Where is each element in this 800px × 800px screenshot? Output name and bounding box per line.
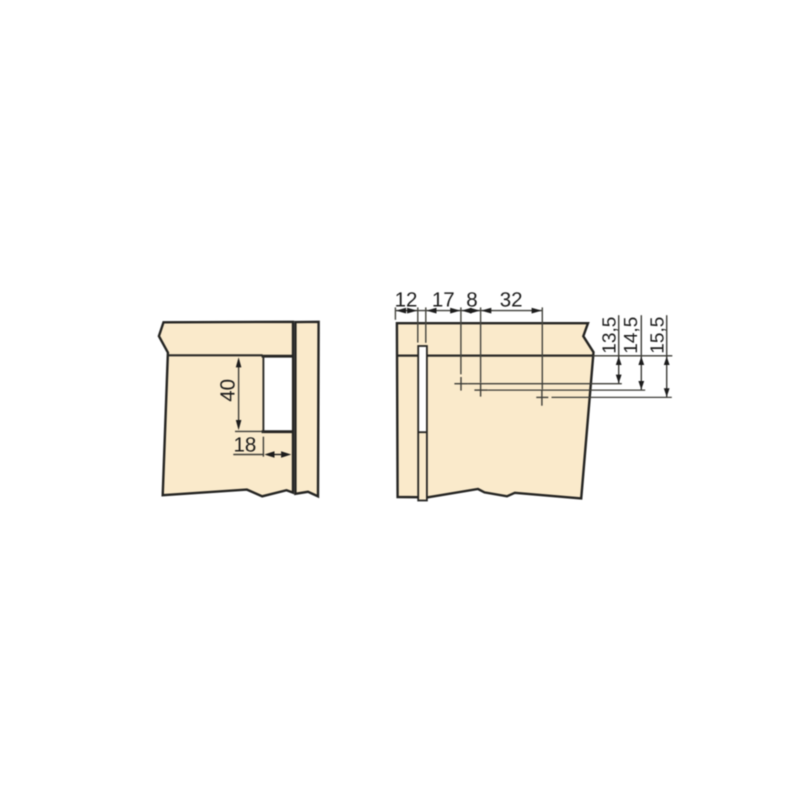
- svg-text:13,5: 13,5: [599, 317, 620, 354]
- svg-text:40: 40: [216, 379, 239, 402]
- svg-text:8: 8: [466, 288, 477, 311]
- svg-text:18: 18: [233, 433, 256, 456]
- svg-text:17: 17: [432, 288, 455, 311]
- svg-text:14,5: 14,5: [621, 317, 642, 354]
- svg-text:32: 32: [500, 288, 523, 311]
- svg-text:15,5: 15,5: [647, 317, 668, 354]
- svg-text:12: 12: [395, 288, 418, 311]
